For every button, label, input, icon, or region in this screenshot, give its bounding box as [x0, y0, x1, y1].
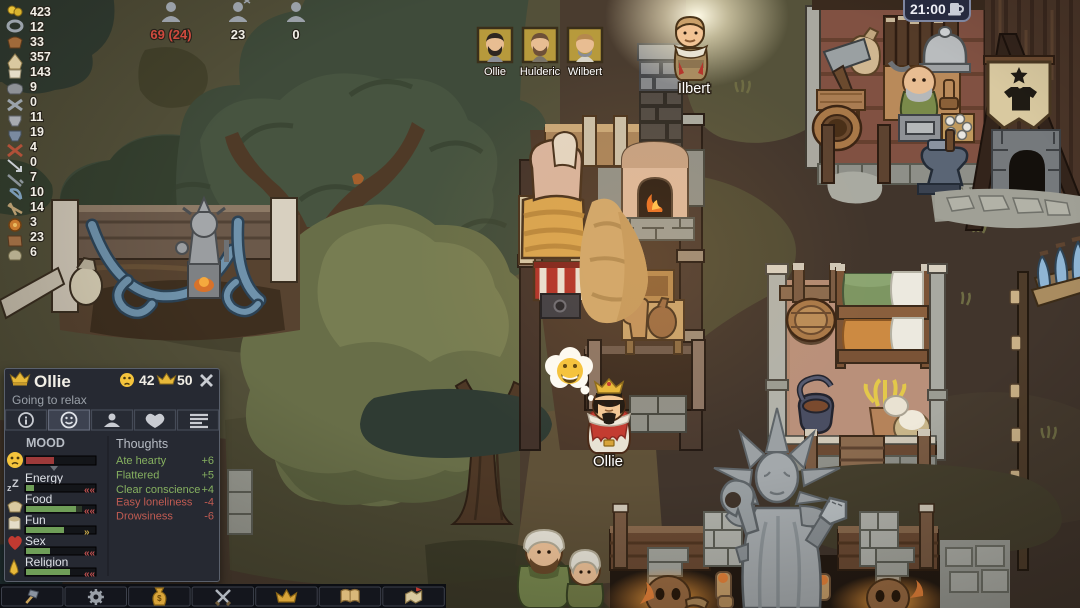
svg-text:0: 0 — [30, 155, 37, 169]
svg-text:Drowsiness: Drowsiness — [116, 511, 173, 523]
svg-text:««: «« — [84, 569, 96, 580]
svg-text:««: «« — [84, 485, 96, 496]
svg-text:-6: -6 — [204, 511, 214, 523]
svg-text:357: 357 — [30, 50, 51, 64]
svg-text:Religion: Religion — [25, 555, 68, 569]
svg-text:19: 19 — [30, 125, 44, 139]
svg-text:Going to relax: Going to relax — [12, 393, 87, 407]
svg-text:12: 12 — [30, 20, 44, 34]
svg-text:Hulderic: Hulderic — [520, 66, 561, 78]
svg-text:Ate hearty: Ate hearty — [116, 455, 167, 467]
svg-text:Food: Food — [25, 492, 52, 506]
svg-text:»: » — [84, 527, 90, 538]
svg-text:Easy loneliness: Easy loneliness — [116, 497, 193, 509]
svg-text:Flattered: Flattered — [116, 470, 159, 482]
svg-text:$: $ — [157, 594, 162, 603]
svg-text:Fun: Fun — [25, 513, 46, 527]
svg-text:3: 3 — [30, 215, 37, 229]
svg-text:143: 143 — [30, 65, 51, 79]
svg-text:11: 11 — [30, 110, 43, 124]
svg-text:Ollie: Ollie — [34, 372, 71, 391]
svg-text:423: 423 — [30, 5, 51, 19]
svg-text:33: 33 — [30, 35, 44, 49]
svg-text:23: 23 — [231, 27, 245, 42]
svg-text:Wilbert: Wilbert — [568, 66, 602, 78]
svg-text:-4: -4 — [204, 497, 214, 509]
svg-text:Sex: Sex — [25, 534, 46, 548]
svg-text:+5: +5 — [201, 470, 214, 482]
svg-text:««: «« — [84, 548, 96, 559]
svg-text:0: 0 — [292, 27, 299, 42]
svg-text:42: 42 — [139, 372, 155, 388]
svg-text:4: 4 — [30, 140, 37, 154]
svg-text:14: 14 — [30, 200, 44, 214]
svg-text:9: 9 — [30, 80, 37, 94]
svg-text:50: 50 — [177, 372, 193, 388]
svg-text:Energy: Energy — [25, 471, 63, 485]
svg-text:6: 6 — [30, 245, 37, 259]
svg-text:23: 23 — [30, 230, 44, 244]
svg-text:69 (24): 69 (24) — [150, 27, 191, 42]
svg-text:MOOD: MOOD — [26, 436, 65, 450]
svg-text:Thoughts: Thoughts — [116, 437, 168, 451]
svg-text:Ollie: Ollie — [484, 66, 506, 78]
svg-text:««: «« — [84, 506, 96, 517]
svg-text:+6: +6 — [201, 455, 214, 467]
svg-text:0: 0 — [30, 95, 37, 109]
svg-text:+4: +4 — [201, 484, 214, 496]
svg-text:Clear conscience: Clear conscience — [116, 484, 200, 496]
svg-text:10: 10 — [30, 185, 44, 199]
svg-text:7: 7 — [30, 170, 37, 184]
svg-text:Z: Z — [12, 478, 19, 490]
